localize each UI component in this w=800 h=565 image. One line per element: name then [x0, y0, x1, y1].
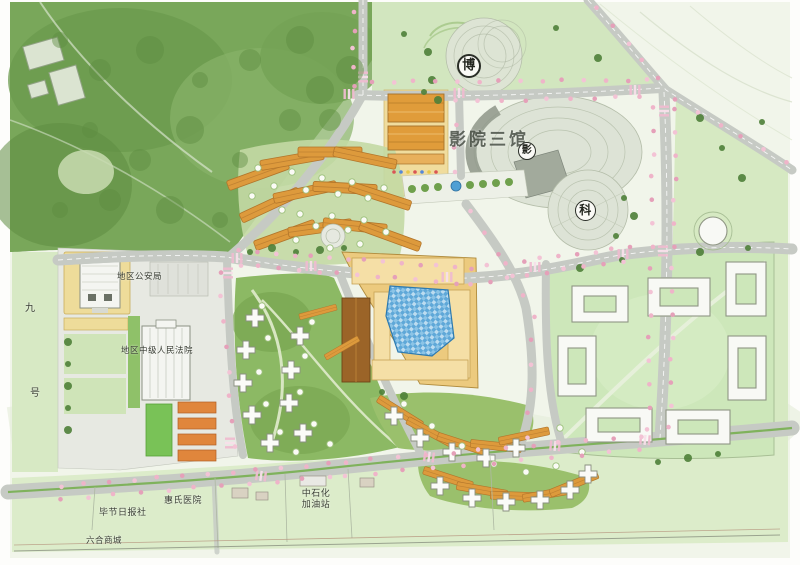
museum-badge: 博 — [457, 54, 481, 78]
sports-court — [146, 404, 172, 456]
gas-station-label: 中石化 加油站 — [296, 489, 336, 511]
cinema-complex-label: 影院三馆 — [449, 131, 529, 151]
shopping-mall-label: 六合商城 — [86, 537, 122, 547]
gas-station-line2: 加油站 — [296, 500, 336, 511]
road-name-char-top: 九 — [25, 303, 36, 315]
public-security-bureau-label: 地区公安局 — [117, 273, 162, 283]
cinema-badge: 影 — [518, 142, 536, 160]
security-bureau-building — [80, 258, 120, 313]
peoples-court-label: 地区中级人民法院 — [121, 347, 193, 357]
newspaper-office-label: 毕节日报社 — [99, 508, 147, 518]
road-name-char-bottom: 号 — [30, 388, 41, 400]
lake-pool — [386, 286, 454, 356]
gas-station-line1: 中石化 — [296, 489, 336, 500]
science-badge: 科 — [575, 200, 596, 221]
hospital-label: 惠氏医院 — [164, 496, 202, 506]
site-plan: 博 影院三馆 影 科 地区公安局 地区中级人民法院 九 号 毕节日报社 惠氏医院… — [0, 0, 800, 565]
court-building — [142, 320, 190, 400]
round-tower — [699, 217, 727, 245]
green-strip — [128, 316, 140, 408]
fountain — [451, 181, 461, 191]
